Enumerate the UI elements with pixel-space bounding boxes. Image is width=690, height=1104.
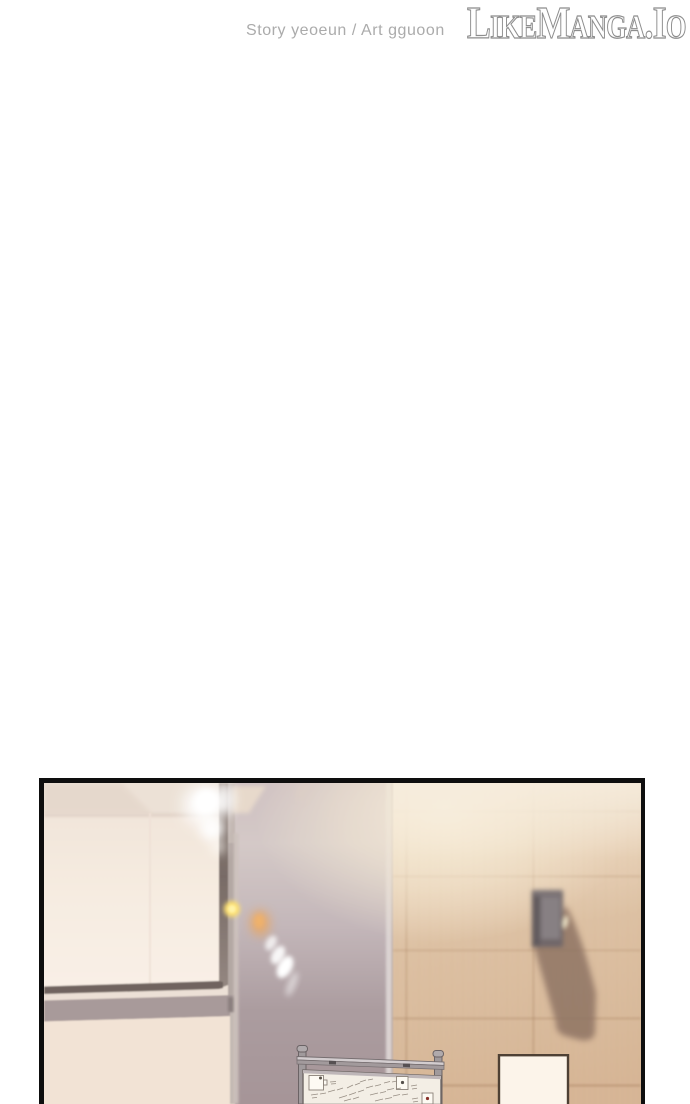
svg-text:LIKEMANGA.IO: LIKEMANGA.IO: [467, 2, 686, 46]
